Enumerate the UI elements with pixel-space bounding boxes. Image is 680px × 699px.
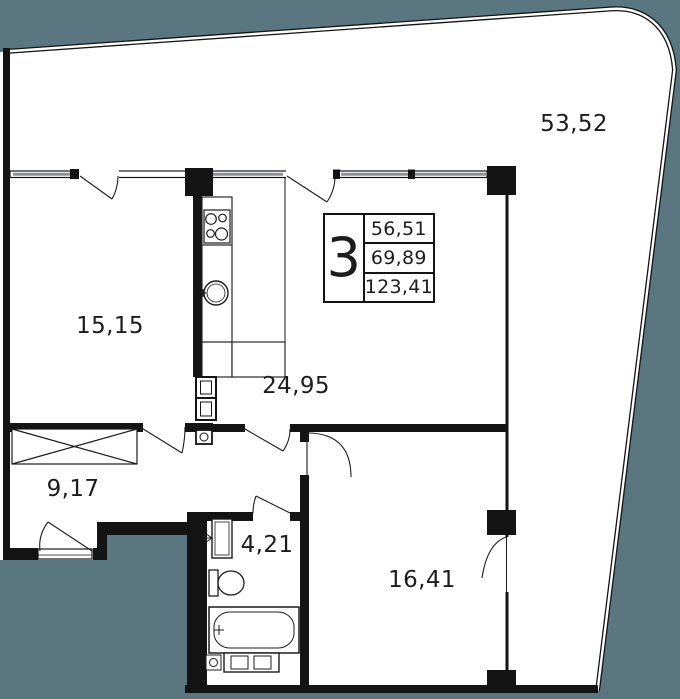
floor-plan: 53,52 15,15 24,95 9,17 4,21 16,41 3 56,5… [0, 0, 680, 699]
room-area-label-kitchen-living: 24,95 [262, 373, 330, 399]
apartment-area-value: 69,89 [365, 242, 433, 271]
column-top-right [487, 166, 516, 195]
room-area-label-terrace: 53,52 [540, 111, 608, 137]
plan-canvas [0, 0, 680, 699]
living-area-value: 56,51 [365, 215, 433, 242]
column-bottom-right [487, 670, 516, 692]
washing-machine-icon [224, 653, 279, 672]
wardrobe-icon [12, 429, 137, 464]
room-count: 3 [325, 215, 365, 301]
unit-areas: 56,51 69,89 123,41 [365, 215, 433, 301]
room-area-label-bathroom: 4,21 [241, 532, 294, 558]
room-area-label-hallway: 9,17 [47, 476, 100, 502]
column-mid-right [487, 510, 516, 535]
room-area-label-bedroom: 15,15 [76, 313, 144, 339]
toilet-icon [209, 570, 244, 596]
total-area-value: 123,41 [365, 272, 433, 301]
bathtub-icon [209, 607, 299, 653]
floor-drain-icon [206, 655, 221, 670]
room-area-label-bedroom-2: 16,41 [388, 567, 456, 593]
vent-shaft-icon [196, 377, 216, 420]
stove-icon [204, 210, 230, 243]
water-heater-icon [196, 430, 212, 444]
right-wall [506, 195, 509, 672]
entrance-threshold-icon [38, 549, 92, 559]
column-kitchen [185, 168, 213, 196]
unit-info-badge: 3 56,51 69,89 123,41 [323, 213, 435, 303]
